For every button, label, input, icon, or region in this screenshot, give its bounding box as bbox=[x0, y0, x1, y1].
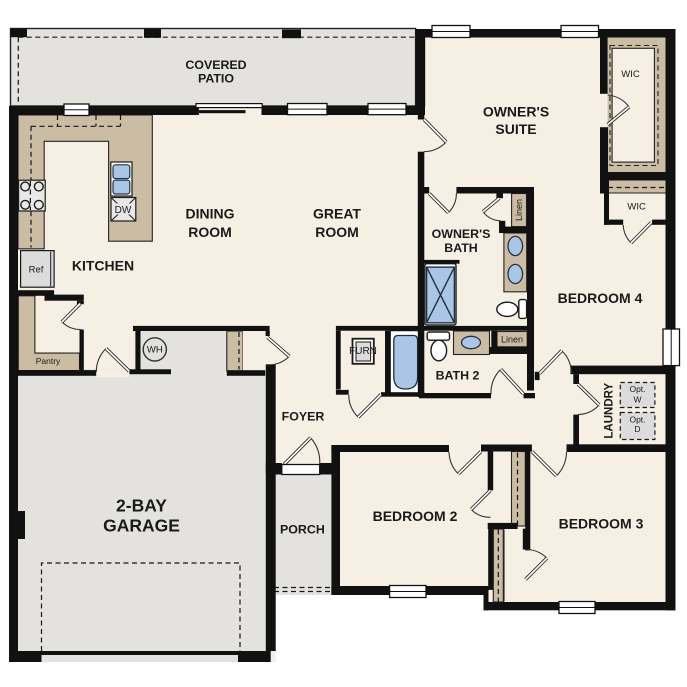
svg-text:BEDROOM 3: BEDROOM 3 bbox=[559, 516, 644, 532]
svg-text:DINING: DINING bbox=[186, 206, 235, 222]
svg-text:FOYER: FOYER bbox=[282, 409, 325, 423]
svg-text:PORCH: PORCH bbox=[280, 522, 325, 536]
svg-text:BEDROOM 2: BEDROOM 2 bbox=[373, 508, 458, 524]
svg-text:Linen: Linen bbox=[501, 335, 523, 345]
svg-text:DW: DW bbox=[115, 205, 132, 216]
svg-text:BEDROOM 4: BEDROOM 4 bbox=[558, 290, 643, 306]
svg-text:WH: WH bbox=[147, 345, 163, 356]
svg-text:BATH 2: BATH 2 bbox=[436, 368, 480, 382]
svg-text:Opt.: Opt. bbox=[629, 384, 645, 394]
svg-text:WIC: WIC bbox=[621, 69, 640, 80]
svg-text:COVERED: COVERED bbox=[185, 58, 246, 72]
svg-text:OWNER'S: OWNER'S bbox=[432, 227, 491, 241]
svg-text:WIC: WIC bbox=[627, 201, 646, 212]
svg-text:W: W bbox=[633, 395, 641, 405]
svg-text:Opt.: Opt. bbox=[629, 415, 645, 425]
svg-text:2-BAY: 2-BAY bbox=[116, 496, 167, 516]
svg-text:FURN: FURN bbox=[349, 346, 377, 357]
svg-text:ROOM: ROOM bbox=[188, 224, 232, 240]
svg-text:LAUNDRY: LAUNDRY bbox=[603, 382, 615, 438]
svg-text:BATH: BATH bbox=[444, 241, 478, 255]
svg-text:Ref: Ref bbox=[29, 265, 44, 276]
svg-text:OWNER'S: OWNER'S bbox=[483, 103, 549, 119]
svg-text:D: D bbox=[634, 424, 640, 434]
svg-text:SUITE: SUITE bbox=[495, 121, 536, 137]
svg-text:Pantry: Pantry bbox=[36, 356, 61, 366]
svg-text:KITCHEN: KITCHEN bbox=[72, 258, 134, 274]
svg-text:ROOM: ROOM bbox=[315, 224, 359, 240]
svg-text:Linen: Linen bbox=[514, 199, 524, 221]
svg-text:GREAT: GREAT bbox=[313, 206, 361, 222]
svg-text:PATIO: PATIO bbox=[198, 71, 234, 85]
svg-text:GARAGE: GARAGE bbox=[103, 516, 180, 536]
